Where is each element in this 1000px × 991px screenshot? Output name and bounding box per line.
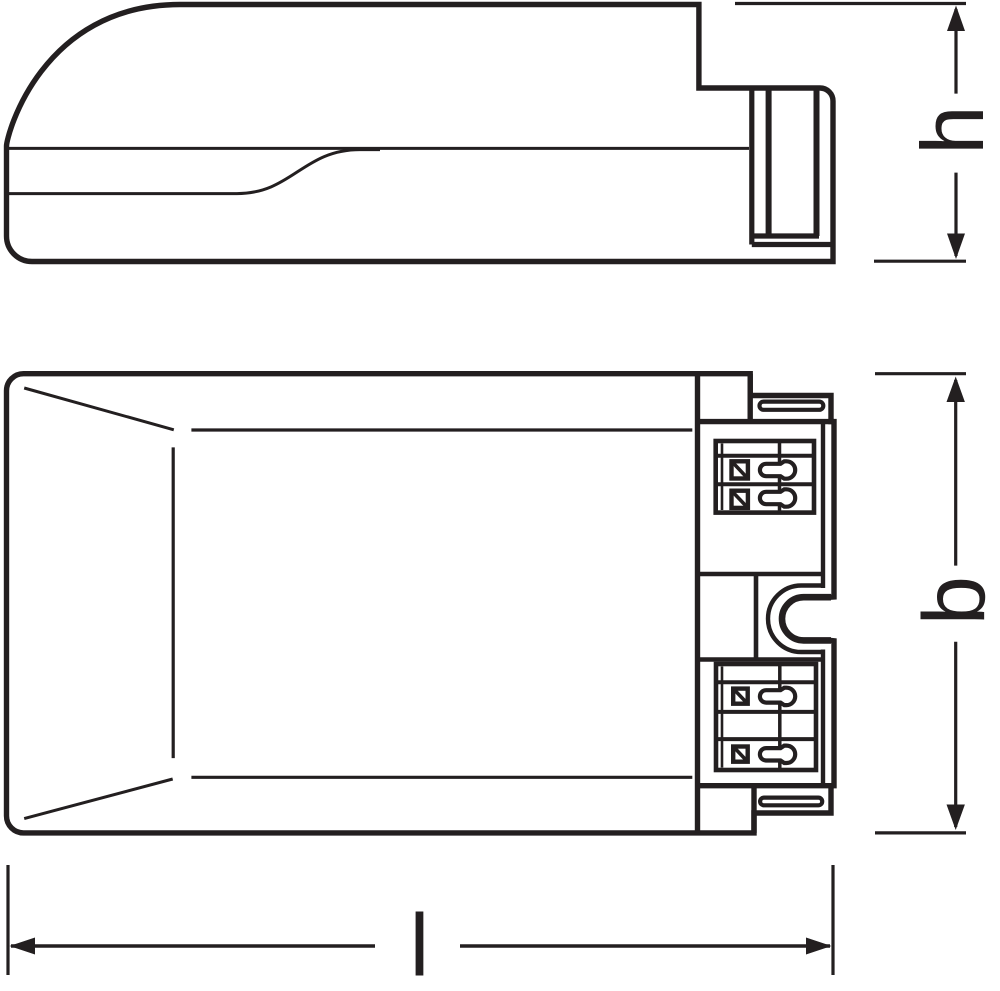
svg-text:h: h [903,106,1000,155]
svg-text:l: l [410,896,430,991]
svg-text:b: b [905,576,1000,625]
